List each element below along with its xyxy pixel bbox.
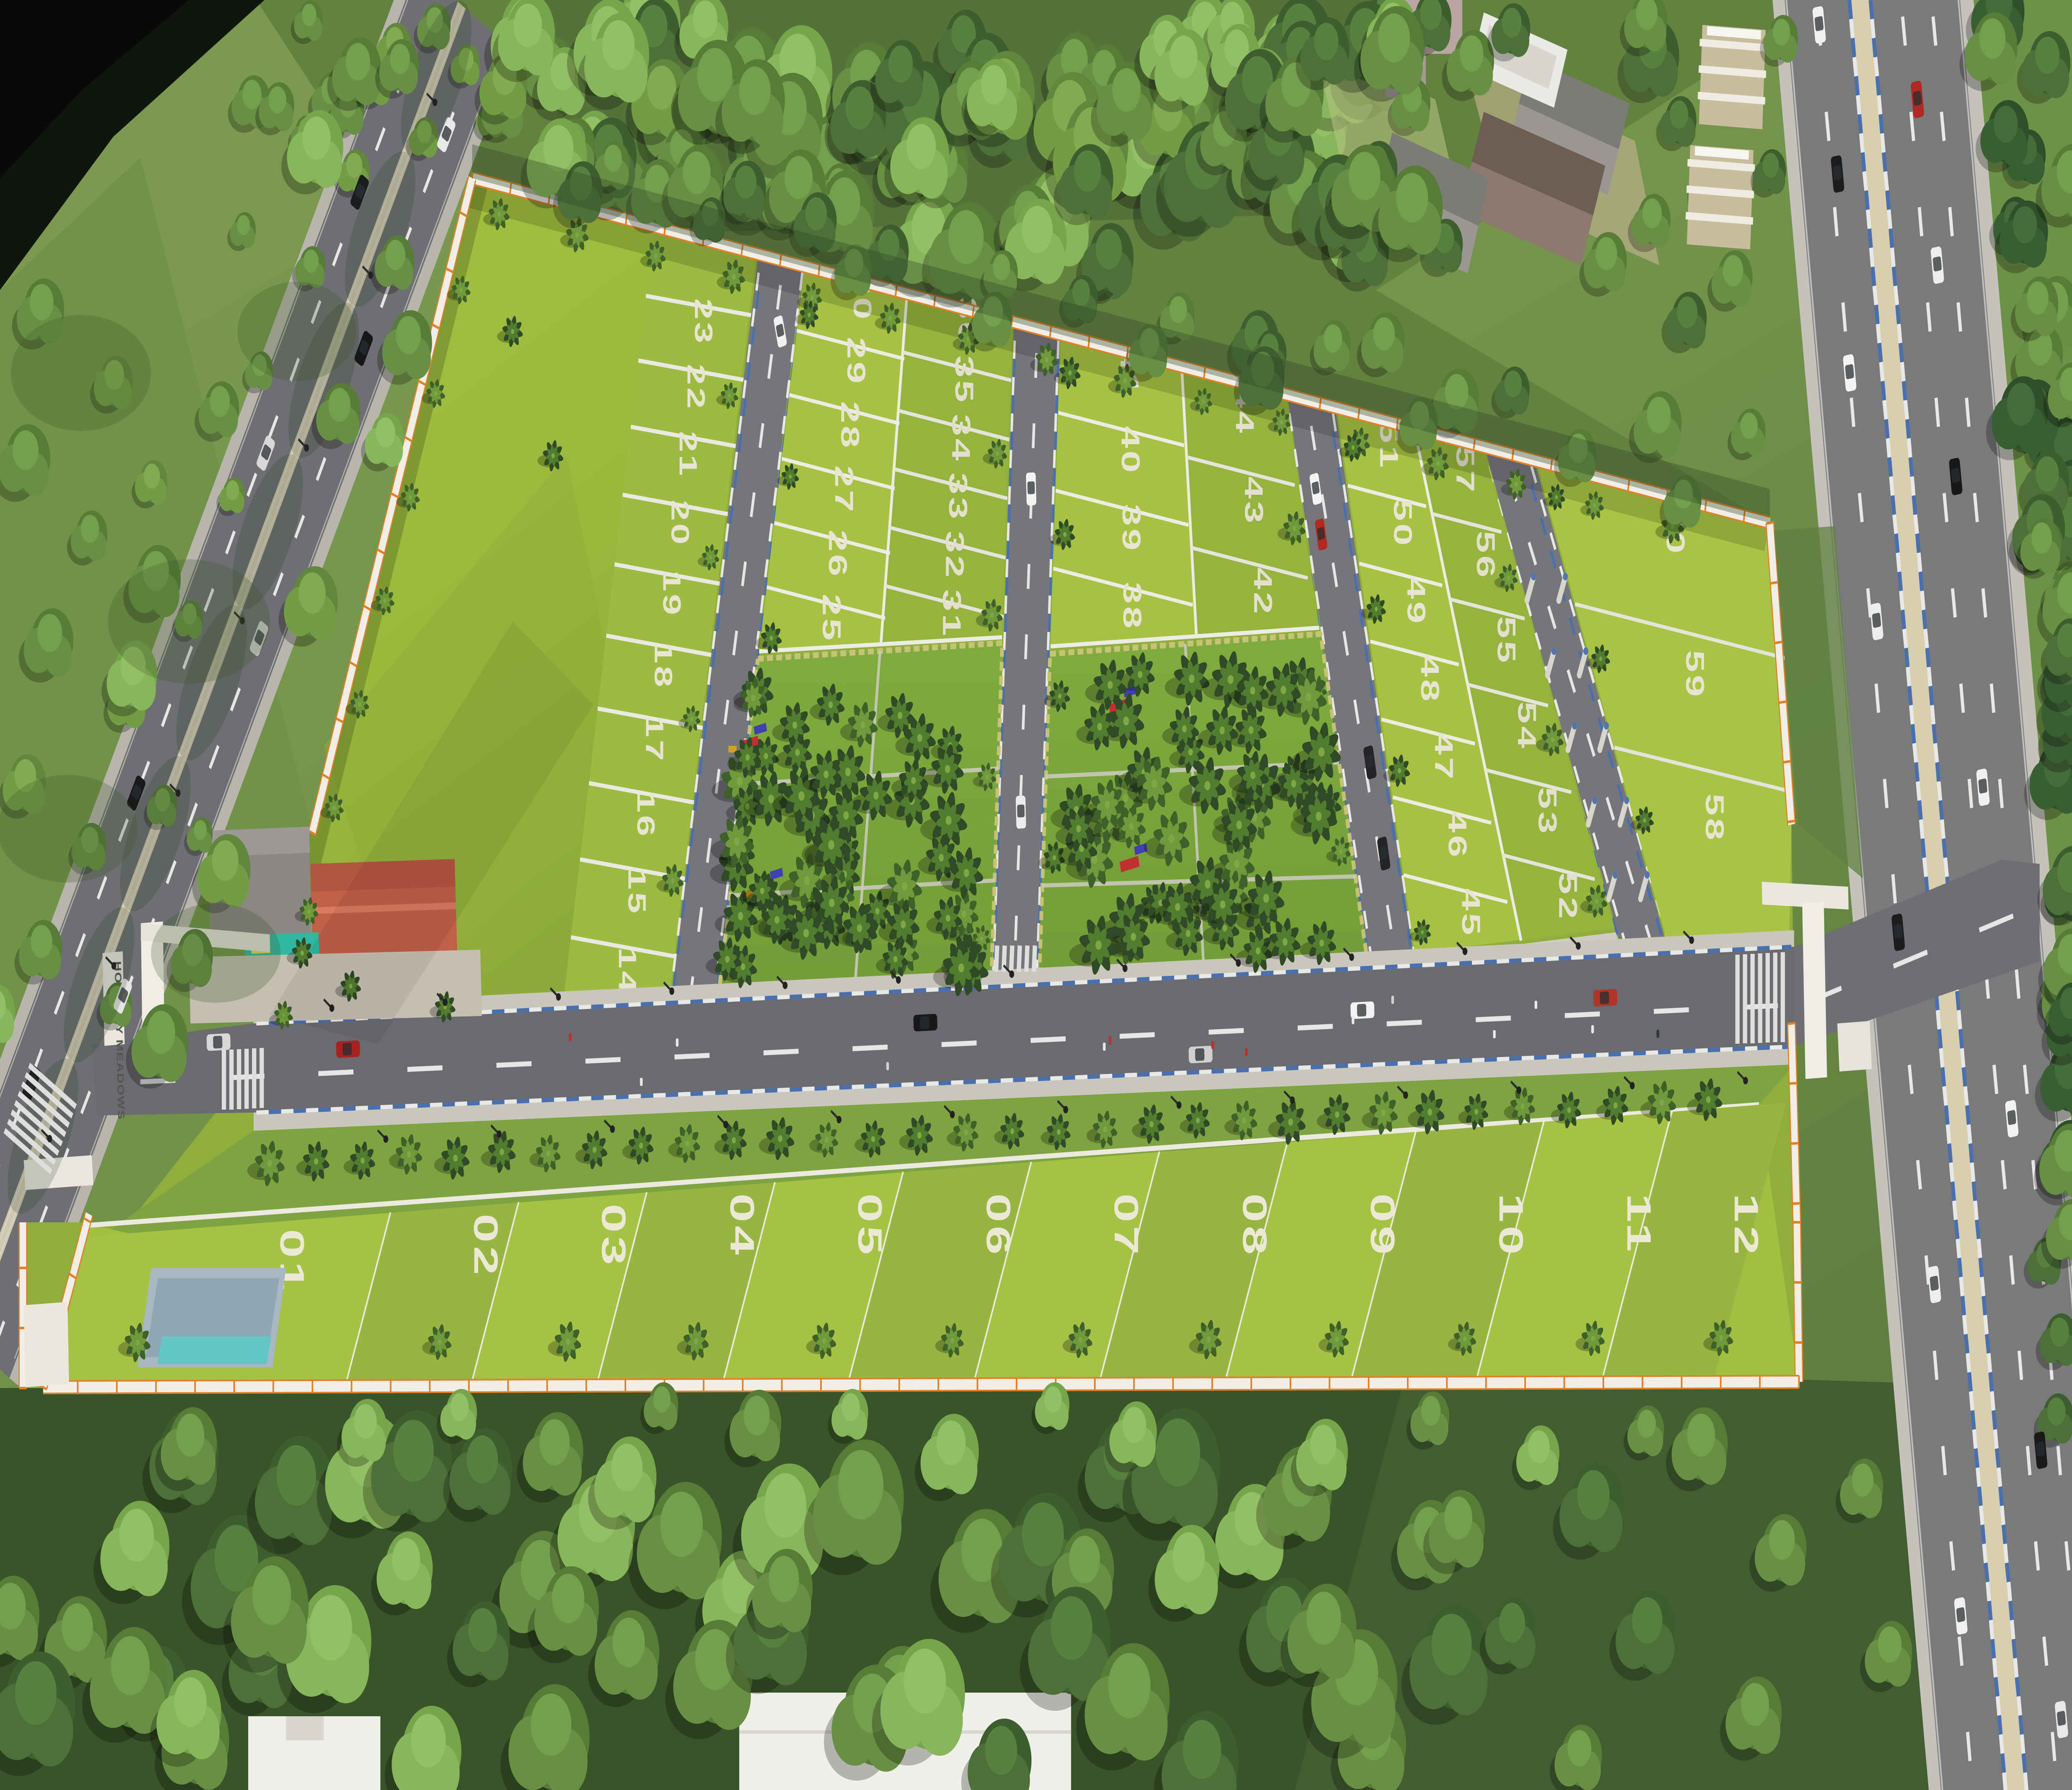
svg-text:43: 43	[1239, 477, 1268, 526]
svg-text:21: 21	[674, 431, 702, 478]
svg-text:28: 28	[835, 401, 864, 450]
svg-text:10: 10	[1492, 1193, 1530, 1258]
svg-text:59: 59	[1680, 650, 1709, 699]
svg-text:23: 23	[690, 298, 717, 346]
svg-text:58: 58	[1700, 793, 1729, 843]
svg-text:38: 38	[1118, 582, 1146, 631]
svg-text:40: 40	[1116, 426, 1145, 475]
svg-text:33: 33	[943, 472, 972, 522]
svg-text:03: 03	[595, 1204, 633, 1268]
svg-text:18: 18	[649, 642, 677, 689]
svg-text:27: 27	[830, 465, 858, 515]
svg-text:12: 12	[1727, 1193, 1765, 1258]
svg-text:14: 14	[613, 947, 641, 994]
svg-text:20: 20	[666, 500, 693, 547]
svg-text:31: 31	[937, 589, 966, 639]
svg-text:48: 48	[1416, 655, 1444, 704]
svg-text:16: 16	[632, 791, 659, 839]
svg-text:29: 29	[842, 337, 870, 386]
svg-text:52: 52	[1553, 872, 1582, 922]
svg-text:50: 50	[1388, 499, 1417, 548]
svg-text:39: 39	[1117, 504, 1145, 553]
svg-text:56: 56	[1471, 531, 1500, 580]
svg-text:46: 46	[1443, 810, 1472, 860]
svg-text:11: 11	[1620, 1193, 1658, 1255]
svg-text:06: 06	[980, 1193, 1018, 1258]
svg-text:55: 55	[1492, 616, 1520, 665]
svg-text:17: 17	[641, 716, 668, 763]
svg-text:32: 32	[940, 531, 969, 580]
svg-text:42: 42	[1249, 567, 1277, 617]
svg-text:22: 22	[682, 364, 709, 411]
svg-text:53: 53	[1533, 787, 1561, 836]
svg-text:19: 19	[658, 570, 685, 617]
svg-text:49: 49	[1402, 577, 1431, 626]
svg-text:05: 05	[851, 1193, 889, 1258]
svg-text:02: 02	[467, 1214, 505, 1278]
svg-text:07: 07	[1107, 1193, 1145, 1258]
svg-text:04: 04	[723, 1193, 761, 1258]
svg-text:08: 08	[1236, 1193, 1274, 1258]
svg-text:25: 25	[817, 594, 846, 643]
svg-text:34: 34	[946, 414, 975, 463]
svg-text:26: 26	[823, 530, 852, 579]
svg-text:15: 15	[623, 868, 650, 916]
svg-text:47: 47	[1429, 733, 1458, 782]
svg-text:45: 45	[1457, 888, 1485, 938]
svg-text:35: 35	[949, 356, 978, 405]
svg-text:09: 09	[1364, 1193, 1402, 1258]
